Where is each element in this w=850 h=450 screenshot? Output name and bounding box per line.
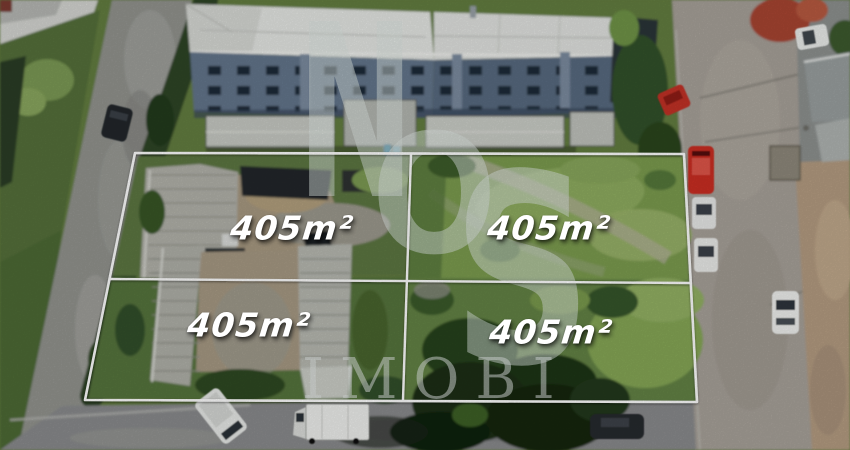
lot-label-bottom-left: 405m² <box>186 309 312 342</box>
lot-label-top-left: 405m² <box>229 212 355 245</box>
terrain-scene: N O S IMOBI <box>0 0 850 450</box>
lot-label-bottom-right: 405m² <box>488 316 614 349</box>
aerial-lot-photo: N O S IMOBI 405m² 405m² 405m² 405m² <box>0 0 850 450</box>
lot-label-top-right: 405m² <box>486 212 612 245</box>
photo-grain <box>0 0 850 450</box>
